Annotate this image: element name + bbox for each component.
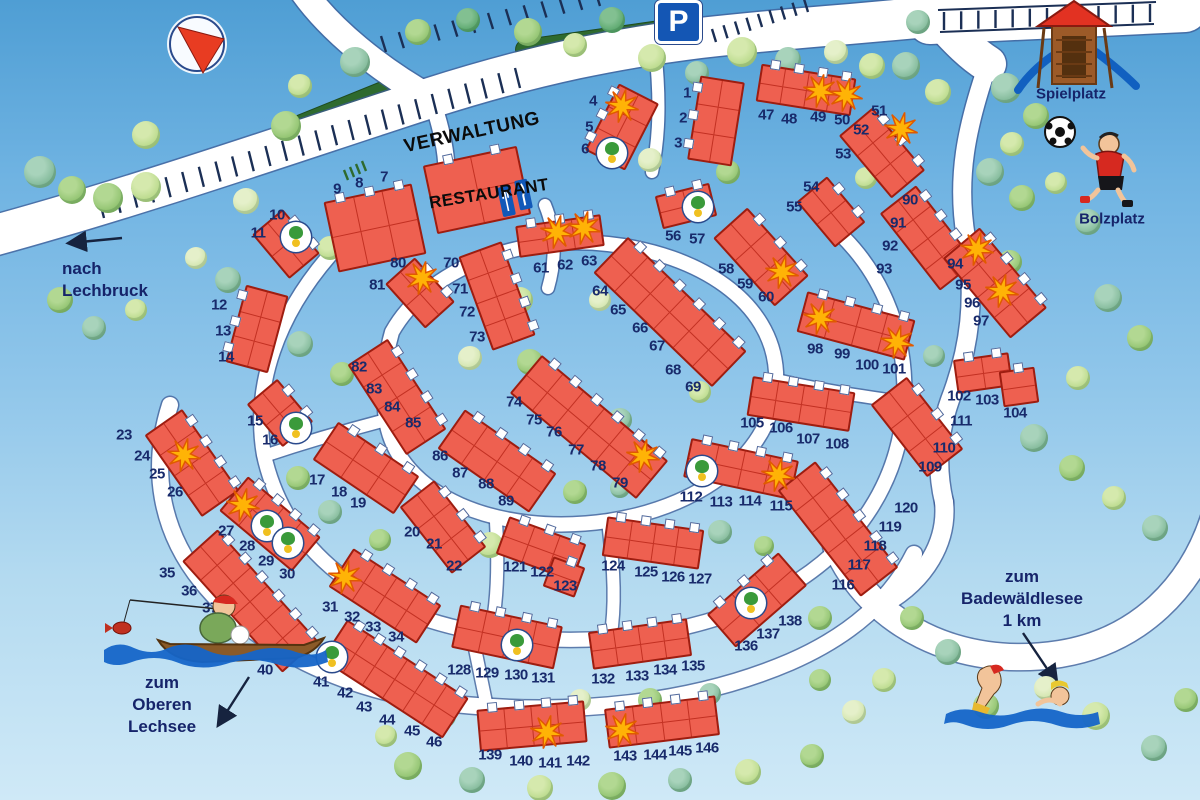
zum-oberen-lechsee-label: zumOberenLechsee [128, 672, 196, 738]
parking-hatches [344, 161, 366, 180]
nach-lechbruck-label: nachLechbruck [62, 258, 148, 302]
road [652, 48, 658, 172]
swimmers-illustration [938, 658, 1108, 738]
parking-sign: P [655, 0, 702, 44]
label-line: Lechsee [128, 716, 196, 738]
label-line: Lechbruck [62, 280, 148, 302]
spielplatz-label: Spielplatz [1036, 86, 1106, 103]
label-line: zum [128, 672, 196, 694]
bolzplatz-label: Bolzplatz [1079, 211, 1145, 228]
label-line: 1 km [961, 610, 1083, 632]
fisherman-in-boat-illustration [100, 588, 340, 683]
footballer-illustration [1038, 108, 1148, 218]
road [494, 522, 497, 614]
holiday-park-site-map: 1234567891011121314151617181920212223242… [0, 0, 1200, 800]
compass-icon [167, 14, 227, 74]
label-line: zum [961, 566, 1083, 588]
direction-arrow [70, 238, 122, 243]
direction-arrow [219, 677, 249, 724]
road [264, 420, 386, 456]
label-line: Oberen [128, 694, 196, 716]
label-line: nach [62, 258, 148, 280]
road [384, 242, 776, 524]
label-line: Badewäldlesee [961, 588, 1083, 610]
zum-badewaeldlesee-label: zumBadewäldlesee1 km [961, 566, 1083, 632]
road [302, 0, 430, 98]
road [608, 521, 614, 626]
